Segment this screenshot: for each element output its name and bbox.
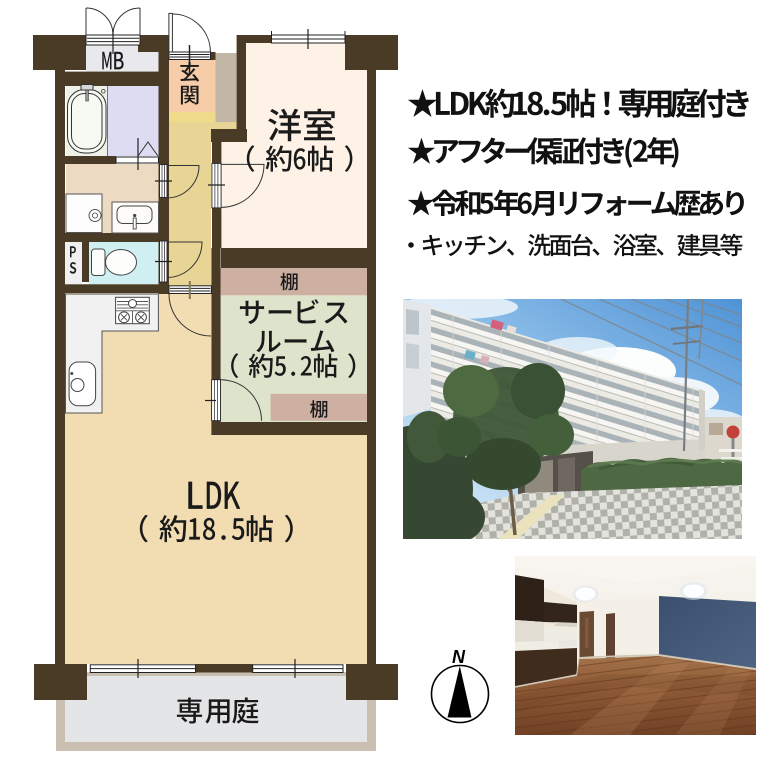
svg-text:N: N	[452, 647, 466, 667]
